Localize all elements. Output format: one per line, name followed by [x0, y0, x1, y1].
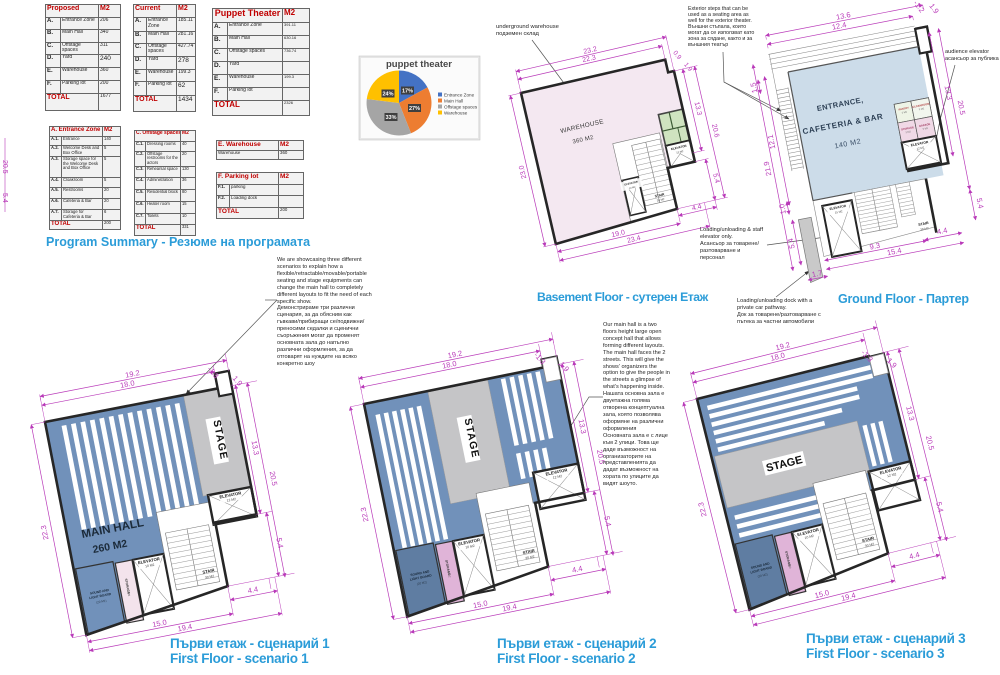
- svg-text:13.3: 13.3: [943, 85, 955, 101]
- svg-text:24%: 24%: [382, 92, 393, 98]
- svg-text:13.3: 13.3: [249, 440, 261, 456]
- svg-text:12.1: 12.1: [766, 134, 778, 150]
- svg-text:Entrance Zone: Entrance Zone: [444, 92, 475, 97]
- svg-text:Warehouse: Warehouse: [444, 110, 468, 115]
- svg-text:5.4: 5.4: [711, 173, 720, 184]
- svg-text:22.3: 22.3: [39, 525, 51, 541]
- svg-text:20.5: 20.5: [924, 435, 936, 451]
- svg-text:5.4: 5.4: [934, 501, 945, 513]
- svg-text:1.9: 1.9: [927, 2, 940, 16]
- svg-text:18.0: 18.0: [441, 359, 457, 371]
- svg-text:23.4: 23.4: [627, 235, 642, 245]
- svg-text:15.0: 15.0: [151, 618, 167, 630]
- svg-text:1.0: 1.0: [777, 203, 788, 215]
- svg-text:19.4: 19.4: [501, 602, 517, 614]
- svg-text:5.4: 5.4: [274, 537, 285, 549]
- svg-text:4.4: 4.4: [691, 203, 702, 212]
- svg-text:-1.2: -1.2: [912, 0, 927, 14]
- svg-text:4.4: 4.4: [936, 226, 948, 237]
- svg-text:22.3: 22.3: [696, 501, 708, 517]
- svg-text:18.0: 18.0: [119, 378, 135, 390]
- svg-text:Main Hall: Main Hall: [444, 98, 463, 103]
- svg-text:0.9: 0.9: [671, 50, 682, 62]
- svg-text:1.9: 1.9: [682, 62, 693, 74]
- svg-text:13.3: 13.3: [693, 101, 703, 116]
- svg-text:20.5: 20.5: [268, 470, 280, 486]
- svg-text:12.4: 12.4: [831, 20, 847, 32]
- svg-text:15.0: 15.0: [472, 598, 488, 610]
- svg-text:13.3: 13.3: [576, 418, 588, 434]
- svg-text:20.5: 20.5: [1, 160, 8, 174]
- svg-text:19.4: 19.4: [840, 591, 856, 603]
- svg-text:23.2: 23.2: [583, 46, 598, 56]
- svg-text:4.4: 4.4: [908, 550, 920, 561]
- svg-text:5.4: 5.4: [1, 193, 8, 203]
- svg-text:puppet theater: puppet theater: [386, 59, 452, 70]
- svg-text:19.4: 19.4: [177, 622, 193, 634]
- svg-text:20.6: 20.6: [710, 123, 720, 138]
- svg-text:21.9: 21.9: [762, 161, 774, 177]
- svg-text:5.4: 5.4: [786, 238, 797, 250]
- svg-text:15.4: 15.4: [886, 246, 902, 258]
- svg-text:4.4: 4.4: [247, 585, 259, 596]
- svg-text:15.0: 15.0: [814, 588, 830, 600]
- svg-text:5.4: 5.4: [602, 515, 613, 527]
- svg-text:27%: 27%: [409, 106, 420, 112]
- svg-text:17%: 17%: [402, 89, 413, 95]
- svg-text:20.5: 20.5: [956, 100, 968, 116]
- svg-text:4.4: 4.4: [571, 564, 583, 575]
- svg-text:5.4: 5.4: [975, 197, 986, 209]
- svg-text:Offstage spaces: Offstage spaces: [444, 104, 478, 109]
- svg-text:18.0: 18.0: [769, 351, 785, 363]
- svg-text:22.3: 22.3: [359, 507, 371, 523]
- svg-text:30 M2: 30 M2: [920, 226, 929, 232]
- svg-text:19.0: 19.0: [611, 229, 626, 239]
- svg-text:33%: 33%: [385, 115, 396, 121]
